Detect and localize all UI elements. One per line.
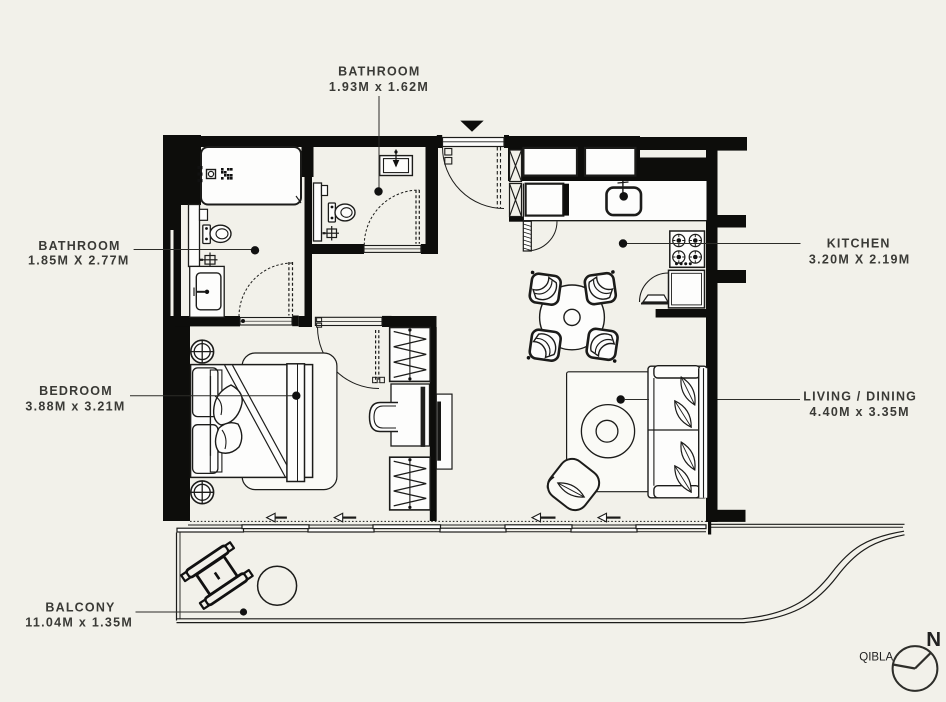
svg-text:1.93M x 1.62M: 1.93M x 1.62M (329, 80, 429, 94)
svg-text:BATHROOM: BATHROOM (38, 239, 120, 253)
svg-text:BALCONY: BALCONY (45, 601, 115, 615)
svg-text:BEDROOM: BEDROOM (39, 384, 113, 398)
svg-text:QIBLA: QIBLA (859, 652, 893, 664)
svg-text:KITCHEN: KITCHEN (827, 237, 891, 251)
svg-text:LIVING / DINING: LIVING / DINING (803, 390, 917, 404)
svg-text:3.20M X 2.19M: 3.20M X 2.19M (809, 252, 911, 266)
svg-text:11.04M x 1.35M: 11.04M x 1.35M (25, 616, 133, 630)
svg-text:4.40M x 3.35M: 4.40M x 3.35M (810, 405, 910, 419)
svg-text:N: N (926, 628, 941, 651)
svg-text:1.85M X 2.77M: 1.85M X 2.77M (28, 253, 130, 267)
svg-text:BATHROOM: BATHROOM (338, 64, 420, 78)
svg-text:3.88M x 3.21M: 3.88M x 3.21M (25, 399, 125, 413)
